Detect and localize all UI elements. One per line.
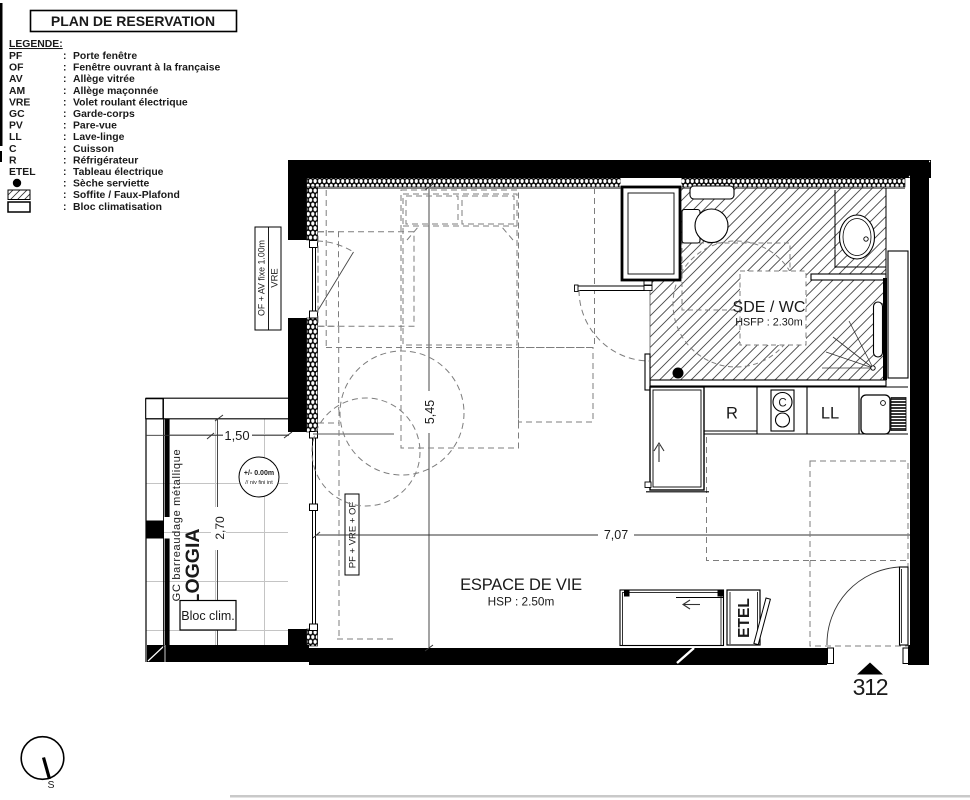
svg-text::: : [63, 132, 66, 143]
svg-text:S: S [47, 779, 54, 791]
svg-text:R: R [726, 405, 738, 423]
svg-text::: : [63, 51, 66, 62]
svg-text:VRE: VRE [9, 97, 30, 108]
svg-text:HSP : 2.50m: HSP : 2.50m [488, 595, 555, 609]
svg-text:SDE / WC: SDE / WC [733, 299, 806, 316]
svg-text:C: C [9, 144, 17, 155]
svg-text::: : [63, 109, 66, 120]
svg-text:LEGENDE:: LEGENDE: [9, 39, 63, 50]
svg-text:ETEL: ETEL [736, 598, 753, 638]
svg-text:PF: PF [9, 51, 22, 62]
svg-text:R: R [9, 155, 17, 166]
svg-text:AM: AM [9, 86, 25, 97]
svg-text::: : [63, 202, 66, 213]
svg-text:Fenêtre ouvrant à la française: Fenêtre ouvrant à la française [73, 63, 220, 74]
svg-text::: : [63, 179, 66, 190]
svg-text:OF + AV fixe 1.00m: OF + AV fixe 1.00m [257, 240, 267, 316]
svg-text:Allège vitrée: Allège vitrée [73, 74, 135, 85]
svg-text::: : [63, 121, 66, 132]
svg-text:PV: PV [9, 121, 23, 132]
svg-text:ESPACE DE VIE: ESPACE DE VIE [460, 576, 582, 594]
svg-text:HSFP : 2.30m: HSFP : 2.30m [735, 317, 803, 329]
svg-text:C: C [778, 398, 786, 410]
svg-text:Cuisson: Cuisson [73, 144, 114, 155]
svg-text:Lave-linge: Lave-linge [73, 132, 125, 143]
svg-text:Volet roulant électrique: Volet roulant électrique [73, 97, 188, 108]
svg-text::: : [63, 167, 66, 178]
svg-text:Bloc climatisation: Bloc climatisation [73, 202, 162, 213]
svg-text::: : [63, 155, 66, 166]
svg-text:PLAN DE RESERVATION: PLAN DE RESERVATION [51, 13, 215, 29]
svg-text:VRE: VRE [270, 268, 281, 288]
svg-text:312: 312 [853, 674, 888, 700]
svg-text:Garde-corps: Garde-corps [73, 109, 135, 120]
svg-text:GC barreaudage métallique: GC barreaudage métallique [171, 449, 183, 602]
svg-text:+/- 0.00m: +/- 0.00m [244, 470, 274, 477]
svg-text:1,50: 1,50 [224, 428, 249, 443]
svg-text:LOGGIA: LOGGIA [182, 529, 204, 606]
svg-text:2,70: 2,70 [213, 516, 227, 540]
svg-text:// niv fini int: // niv fini int [245, 480, 273, 486]
svg-text::: : [63, 97, 66, 108]
svg-text::: : [63, 190, 66, 201]
svg-text::: : [63, 86, 66, 97]
svg-text:Soffite / Faux-Plafond: Soffite / Faux-Plafond [73, 190, 180, 201]
svg-text:5,45: 5,45 [423, 400, 437, 424]
svg-text:OF: OF [9, 63, 23, 74]
svg-text:AV: AV [9, 74, 23, 85]
svg-text:Réfrigérateur: Réfrigérateur [73, 155, 138, 166]
svg-text::: : [63, 74, 66, 85]
svg-text::: : [63, 144, 66, 155]
svg-text:Bloc clim.: Bloc clim. [181, 609, 234, 623]
svg-text:Porte fenêtre: Porte fenêtre [73, 51, 137, 62]
svg-text:Pare-vue: Pare-vue [73, 121, 117, 132]
svg-text:Allège maçonnée: Allège maçonnée [73, 86, 159, 97]
svg-text:ETEL: ETEL [9, 167, 36, 178]
svg-text:LL: LL [821, 405, 839, 423]
svg-text:GC: GC [9, 109, 25, 120]
svg-text:Sèche serviette: Sèche serviette [73, 179, 149, 190]
svg-text:LL: LL [9, 132, 22, 143]
svg-text:7,07: 7,07 [604, 528, 628, 542]
svg-text:Tableau électrique: Tableau électrique [73, 167, 164, 178]
svg-text::: : [63, 63, 66, 74]
